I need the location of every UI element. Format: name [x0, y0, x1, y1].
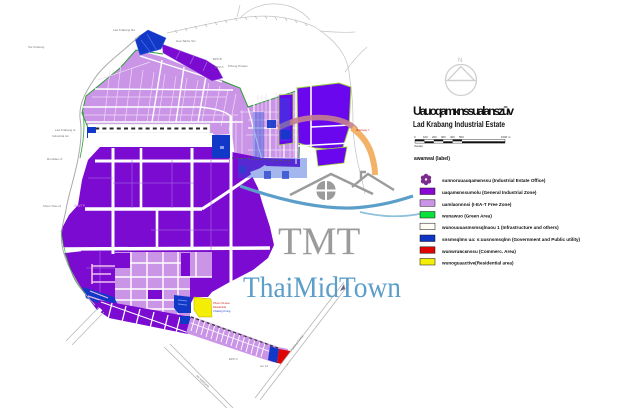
svg-text:Lad Krabang st.: Lad Krabang st.: [55, 128, 76, 132]
svg-text:wunouuuasmsmsqlnaou 1 (Infrast: wunouuuasmsmsqlnaou 1 (Infrastructure an…: [441, 225, 559, 230]
svg-text:Lad Krabang Industrial Estate: Lad Krabang Industrial Estate: [413, 120, 505, 129]
svg-text:Khlong Prawet: Khlong Prawet: [228, 64, 248, 68]
svg-text:wunawuo (Green Area): wunawuo (Green Area): [441, 214, 492, 219]
svg-text:uaqamкnssumolu (General Indust: uaqamкnssumolu (General Industrial Zone): [442, 190, 537, 195]
svg-text:Khum Klao rd: Khum Klao rd: [43, 204, 62, 208]
svg-text:Romklao rd: Romklao rd: [47, 157, 63, 161]
svg-text:400: 400: [450, 135, 455, 139]
svg-text:(Scale): (Scale): [414, 144, 423, 148]
svg-text:sunnoruuauqamкnssu (Industrial: sunnoruuauqamкnssu (Industrial Estate Of…: [442, 178, 546, 183]
svg-text:Hua Takhe Stn: Hua Takhe Stn: [176, 39, 196, 43]
svg-text:Uauoqamкnssualanszūv: Uauoqamкnssualanszūv: [413, 104, 514, 118]
svg-text:500: 500: [459, 135, 464, 139]
svg-text:100: 100: [423, 135, 428, 139]
svg-text:soi 12: soi 12: [260, 364, 268, 368]
svg-text:ThaiMidTown: ThaiMidTown: [243, 271, 401, 304]
svg-text:EPZ B: EPZ B: [213, 57, 222, 61]
svg-text:EPZ A: EPZ A: [215, 65, 224, 69]
svg-text:TMT: TMT: [278, 220, 361, 263]
svg-text:Residential: Residential: [213, 305, 226, 309]
svg-text:wunoguаactive(Residential area: wunoguаactive(Residential area): [441, 261, 514, 266]
svg-text:N: N: [458, 58, 462, 64]
svg-text:wunwruвcкnssu (Commerc. Area): wunwruвcкnssu (Commerc. Area): [441, 249, 516, 254]
svg-text:EPZ C: EPZ C: [229, 357, 239, 361]
svg-text:WWTP: WWTP: [74, 204, 86, 208]
svg-text:Motorway 7: Motorway 7: [356, 128, 370, 132]
svg-text:Industrial stn: Industrial stn: [52, 134, 69, 138]
svg-text:200: 200: [432, 135, 437, 139]
svg-text:Lad Krabang Rd: Lad Krabang Rd: [113, 28, 135, 32]
svg-text:Soi Chalong: Soi Chalong: [28, 45, 45, 49]
svg-text:snsmsqlms ua: s:uusnsmsqlnn (G: snsmsqlms ua: s:uusnsmsqlnn (Government …: [442, 237, 581, 242]
svg-text:Chalong Krung: Chalong Krung: [213, 309, 231, 313]
svg-text:300: 300: [441, 135, 446, 139]
svg-text:awanwal (label): awanwal (label): [414, 156, 450, 162]
svg-text:1000 m: 1000 m: [501, 135, 511, 139]
svg-text:Phuen thi asai: Phuen thi asai: [213, 301, 230, 305]
svg-text:uamlaonnnsi (I-EA-T Free Zone): uamlaonnnsi (I-EA-T Free Zone): [442, 202, 512, 207]
